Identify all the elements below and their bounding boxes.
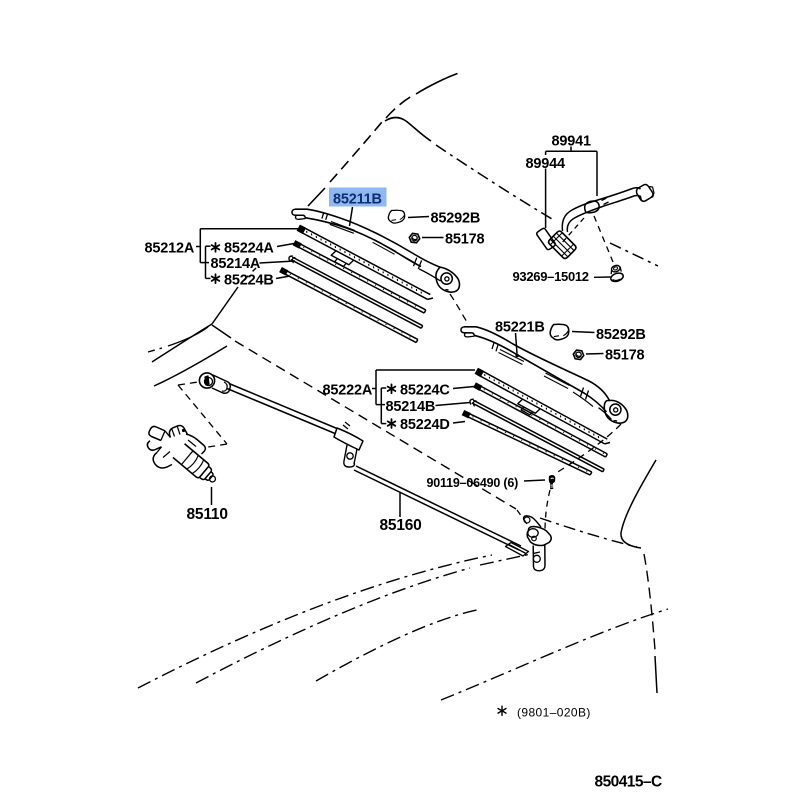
svg-text:89941: 89941 xyxy=(552,133,591,149)
svg-text:90119–06490 (6): 90119–06490 (6) xyxy=(427,476,519,490)
svg-text:85178: 85178 xyxy=(605,347,644,363)
svg-text:85224B: 85224B xyxy=(224,272,274,288)
svg-text:85224C: 85224C xyxy=(400,382,450,398)
svg-text:85292B: 85292B xyxy=(431,210,481,226)
svg-text:85110: 85110 xyxy=(187,506,228,523)
svg-text:850415–C: 850415–C xyxy=(595,774,662,791)
svg-text:(9801–020B): (9801–020B) xyxy=(517,706,591,720)
svg-text:85292B: 85292B xyxy=(596,327,646,343)
svg-text:85224D: 85224D xyxy=(400,417,450,433)
svg-text:85178: 85178 xyxy=(445,232,484,248)
svg-text:85214B: 85214B xyxy=(386,399,436,415)
svg-text:85214A: 85214A xyxy=(211,256,261,272)
svg-text:85212A: 85212A xyxy=(145,241,195,257)
svg-text:85211B: 85211B xyxy=(333,192,382,208)
svg-text:85160: 85160 xyxy=(380,517,422,534)
svg-text:89944: 89944 xyxy=(526,156,565,172)
svg-text:93269–15012: 93269–15012 xyxy=(513,269,589,284)
svg-text:85222A: 85222A xyxy=(323,382,373,398)
svg-text:85221B: 85221B xyxy=(495,320,545,336)
svg-text:85224A: 85224A xyxy=(224,241,274,257)
